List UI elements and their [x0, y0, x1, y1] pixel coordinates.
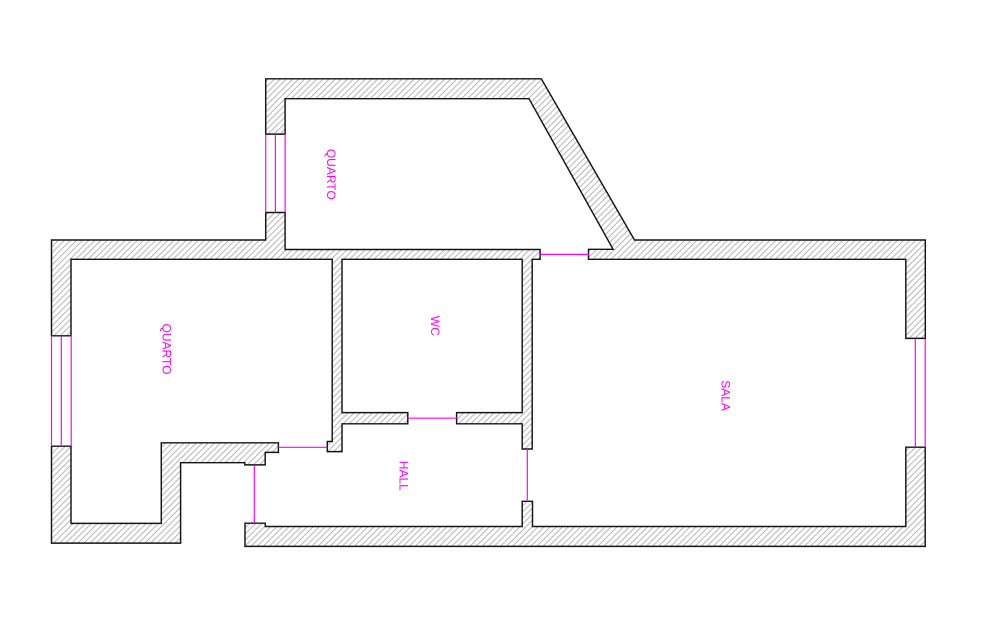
- svg-text:SALA: SALA: [719, 380, 733, 411]
- svg-text:QUARTO: QUARTO: [324, 149, 338, 200]
- svg-text:HALL: HALL: [397, 461, 411, 491]
- svg-text:QUARTO: QUARTO: [160, 324, 174, 375]
- svg-text:WC: WC: [428, 316, 442, 336]
